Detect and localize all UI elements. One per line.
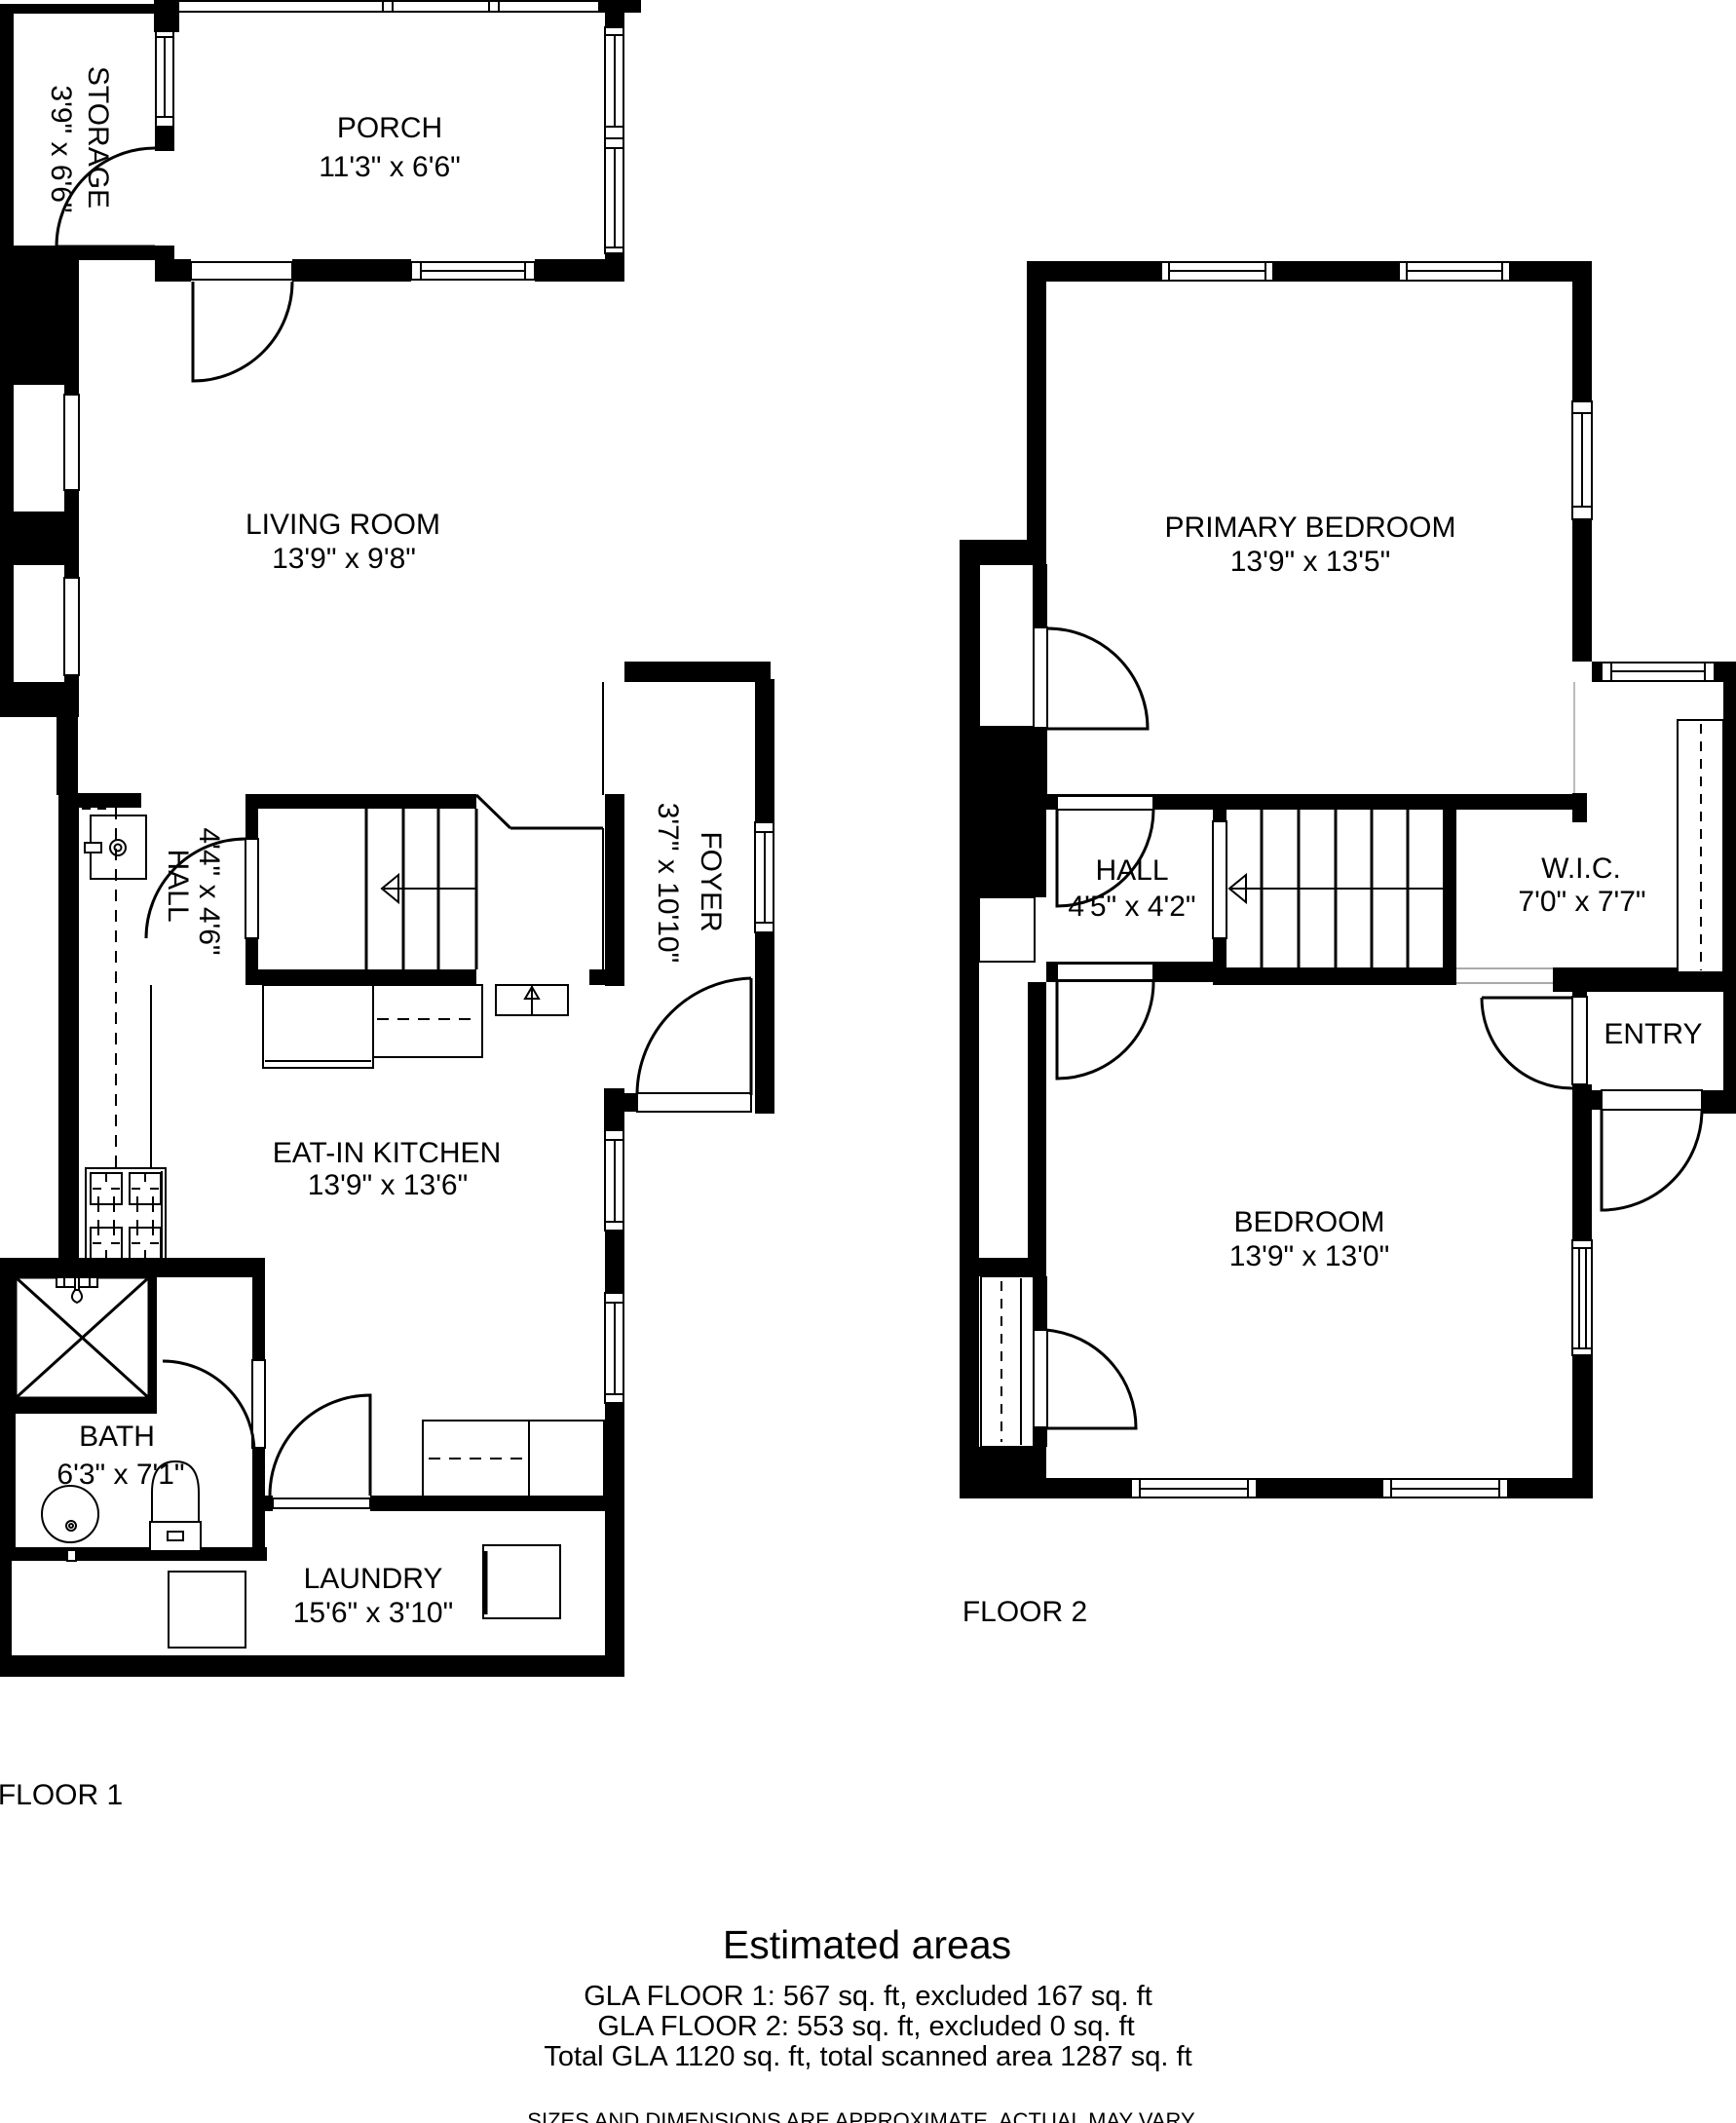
svg-text:13'9" x 13'0": 13'9" x 13'0" bbox=[1229, 1240, 1390, 1272]
svg-text:15'6" x 3'10": 15'6" x 3'10" bbox=[293, 1597, 454, 1629]
svg-text:W.I.C.: W.I.C. bbox=[1541, 853, 1621, 885]
svg-text:STORAGE: STORAGE bbox=[82, 66, 114, 209]
svg-text:BATH: BATH bbox=[79, 1421, 155, 1453]
svg-text:FOYER: FOYER bbox=[695, 831, 727, 931]
svg-text:ENTRY: ENTRY bbox=[1604, 1018, 1702, 1050]
svg-text:HALL: HALL bbox=[162, 849, 194, 922]
svg-text:Estimated areas: Estimated areas bbox=[723, 1922, 1011, 1967]
svg-text:PRIMARY BEDROOM: PRIMARY BEDROOM bbox=[1165, 512, 1456, 544]
svg-text:HALL: HALL bbox=[1095, 854, 1168, 887]
svg-text:LAUNDRY: LAUNDRY bbox=[304, 1563, 443, 1595]
svg-text:7'0" x 7'7": 7'0" x 7'7" bbox=[1518, 886, 1645, 918]
svg-text:6'3" x 7'1": 6'3" x 7'1" bbox=[57, 1459, 184, 1491]
svg-text:13'9" x 13'5": 13'9" x 13'5" bbox=[1230, 546, 1391, 578]
svg-text:4'5" x 4'2": 4'5" x 4'2" bbox=[1068, 891, 1195, 923]
svg-text:BEDROOM: BEDROOM bbox=[1233, 1206, 1384, 1238]
svg-text:Total GLA 1120 sq. ft, total s: Total GLA 1120 sq. ft, total scanned are… bbox=[544, 2041, 1191, 2072]
svg-text:GLA FLOOR 1: 567 sq. ft, exclu: GLA FLOOR 1: 567 sq. ft, excluded 167 sq… bbox=[584, 1981, 1152, 2012]
svg-text:SIZES AND DIMENSIONS ARE APPRO: SIZES AND DIMENSIONS ARE APPROXIMATE, AC… bbox=[527, 2108, 1195, 2123]
svg-text:FLOOR 1: FLOOR 1 bbox=[0, 1779, 123, 1811]
svg-text:11'3" x 6'6": 11'3" x 6'6" bbox=[319, 151, 461, 183]
svg-text:LIVING ROOM: LIVING ROOM bbox=[245, 509, 440, 541]
svg-text:13'9" x 9'8": 13'9" x 9'8" bbox=[272, 543, 416, 575]
svg-text:3'9" x 6'6": 3'9" x 6'6" bbox=[45, 85, 77, 212]
svg-text:PORCH: PORCH bbox=[337, 112, 442, 144]
svg-text:4'4" x 4'6": 4'4" x 4'6" bbox=[193, 827, 225, 955]
svg-text:13'9" x 13'6": 13'9" x 13'6" bbox=[308, 1169, 469, 1201]
svg-text:3'7" x 10'10": 3'7" x 10'10" bbox=[652, 803, 684, 964]
svg-text:EAT-IN KITCHEN: EAT-IN KITCHEN bbox=[273, 1137, 501, 1169]
svg-text:GLA FLOOR 2: 553 sq. ft, exclu: GLA FLOOR 2: 553 sq. ft, excluded 0 sq. … bbox=[597, 2011, 1134, 2042]
svg-text:FLOOR 2: FLOOR 2 bbox=[962, 1596, 1087, 1628]
